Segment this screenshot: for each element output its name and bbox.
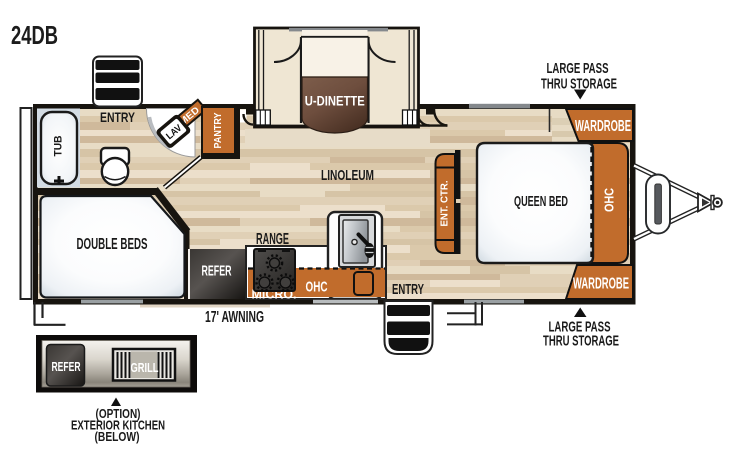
svg-text:OHC: OHC xyxy=(603,188,617,212)
svg-text:THRU STORAGE: THRU STORAGE xyxy=(543,333,619,350)
svg-text:U-DINETTE: U-DINETTE xyxy=(305,93,365,109)
svg-text:QUEEN BED: QUEEN BED xyxy=(514,194,568,210)
svg-text:LINOLEUM: LINOLEUM xyxy=(321,167,374,184)
svg-text:ENTRY: ENTRY xyxy=(392,281,424,298)
svg-text:WARDROBE: WARDROBE xyxy=(575,118,631,135)
svg-text:PANTRY: PANTRY xyxy=(213,112,224,148)
svg-text:17' AWNING: 17' AWNING xyxy=(205,309,264,326)
svg-text:(BELOW): (BELOW) xyxy=(95,430,140,444)
svg-text:WARDROBE: WARDROBE xyxy=(573,276,629,293)
svg-text:ENTRY: ENTRY xyxy=(100,109,135,125)
svg-text:OHC: OHC xyxy=(306,279,328,296)
svg-text:ENT. CTR.: ENT. CTR. xyxy=(439,180,451,226)
svg-text:RANGE: RANGE xyxy=(256,231,289,248)
svg-text:REFER: REFER xyxy=(202,264,232,280)
svg-text:TUB: TUB xyxy=(53,135,65,156)
svg-text:LARGE PASS: LARGE PASS xyxy=(547,60,609,77)
svg-text:24DB: 24DB xyxy=(11,20,58,50)
svg-text:DOUBLE BEDS: DOUBLE BEDS xyxy=(77,236,148,253)
svg-text:GRILL: GRILL xyxy=(131,360,159,375)
svg-text:REFER: REFER xyxy=(52,359,81,374)
